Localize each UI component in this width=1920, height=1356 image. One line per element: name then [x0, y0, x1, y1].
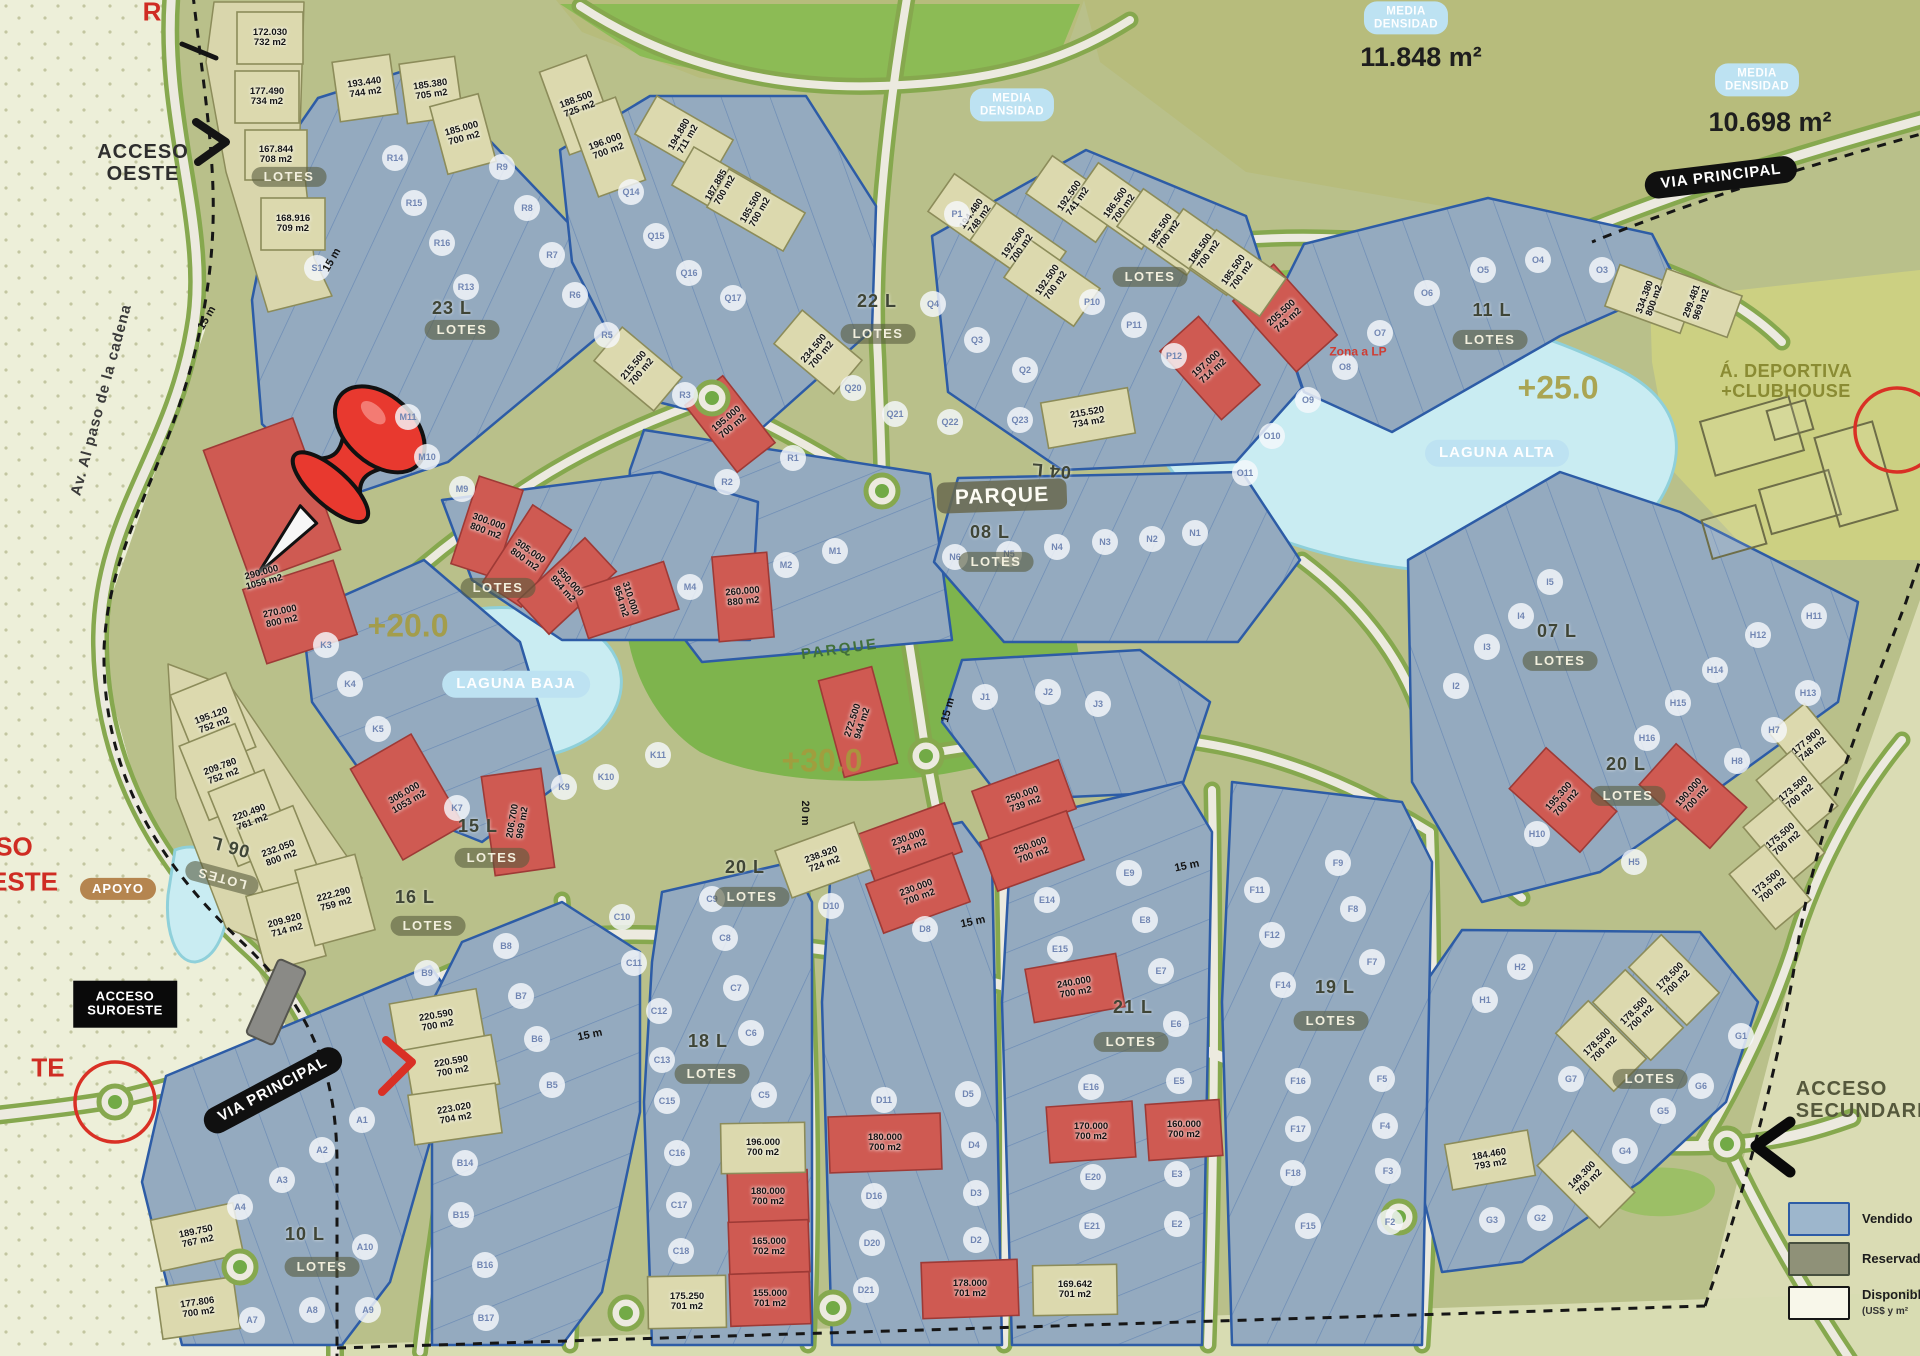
map-label-20-m: 20 m [799, 800, 811, 825]
lot-circle-p10: P10 [1079, 289, 1105, 315]
block-count-label: 22 L [857, 292, 897, 312]
lot-circle-f9: F9 [1325, 850, 1351, 876]
lot-circle-c6: C6 [738, 1020, 764, 1046]
lot-circle-o5: O5 [1470, 257, 1496, 283]
parcel-area-label: 177.900 748 m2 [1790, 727, 1829, 764]
lot-circle-g2: G2 [1527, 1205, 1553, 1231]
lot-circle-f4: F4 [1372, 1113, 1398, 1139]
lot-circle-f17: F17 [1285, 1116, 1311, 1142]
parcel-area-label: 232.050 800 m2 [260, 839, 299, 869]
legend-swatch-reservado [1788, 1242, 1850, 1276]
lotes-badge: LOTES [675, 1064, 750, 1084]
parcel-area-label: 234.500 700 m2 [799, 332, 836, 371]
lot-circle-k5: K5 [365, 716, 391, 742]
parcel-area-label: 310.000 954 m2 [610, 581, 640, 620]
lot-circle-j2: J2 [1035, 679, 1061, 705]
block-count-label: 08 L [970, 523, 1010, 543]
parcel-area-label: 175.500 700 m2 [1764, 821, 1803, 858]
lot-circle-c10: C10 [609, 904, 635, 930]
lot-circle-e7: E7 [1148, 958, 1174, 984]
block-count-label: 07 L [1537, 622, 1577, 642]
parcel-area-label: 178.000 701 m2 [953, 1279, 987, 1299]
lot-circle-e2: E2 [1164, 1211, 1190, 1237]
lotes-badge: LOTES [391, 916, 466, 936]
parcel-area-label: 165.000 702 m2 [752, 1237, 786, 1257]
lot-circle-c8: C8 [712, 925, 738, 951]
parcel-area-label: 192.500 700 m2 [1034, 263, 1070, 303]
lot-circle-b15: B15 [448, 1202, 474, 1228]
lot-circle-b7: B7 [508, 983, 534, 1009]
lot-circle-h16: H16 [1634, 725, 1660, 751]
lot-circle-f18: F18 [1280, 1160, 1306, 1186]
parcel-area-label: 185.000 700 m2 [444, 120, 482, 148]
legend-item-disponible: Disponible (US$ y m² [1788, 1286, 1920, 1320]
lot-circle-b16: B16 [472, 1252, 498, 1278]
parcel-area-label: 195.000 700 m2 [710, 404, 749, 441]
lot-circle-e8: E8 [1132, 907, 1158, 933]
parcel-area-label: 173.500 700 m2 [1750, 868, 1789, 905]
lot-circle-o7: O7 [1367, 320, 1393, 346]
lot-circle-r6: R6 [562, 282, 588, 308]
lotes-badge: LOTES [285, 1257, 360, 1277]
parcel-area-label: 196.000 700 m2 [587, 132, 626, 162]
parcel-area-label: 300.000 800 m2 [467, 512, 506, 542]
lot-circle-b6: B6 [524, 1026, 550, 1052]
lot-circle-h10: H10 [1524, 821, 1550, 847]
lotes-badge: LOTES [461, 578, 536, 598]
parcel-area-label: 196.000 700 m2 [746, 1138, 780, 1158]
block-count-label: 18 L [688, 1032, 728, 1052]
lot-circle-e15: E15 [1047, 936, 1073, 962]
lotes-badge: LOTES [1613, 1069, 1688, 1089]
lot-circle-h12: H12 [1745, 622, 1771, 648]
lot-circle-c15: C15 [654, 1088, 680, 1114]
map-label-15-m: 15 m [320, 246, 343, 274]
map-label-parque: PARQUE [800, 636, 880, 663]
lot-circle-i2: I2 [1443, 673, 1469, 699]
lot-circle-e6: E6 [1163, 1011, 1189, 1037]
lot-circle-q21: Q21 [882, 401, 908, 427]
parcel-area-label: 169.642 701 m2 [1058, 1280, 1092, 1300]
parcel-area-label: 149.300 700 m2 [1567, 1160, 1605, 1198]
parcel-area-label: 186.500 700 m2 [1102, 186, 1138, 226]
lotes-badge: LOTES [455, 848, 530, 868]
lot-circle-r3: R3 [672, 382, 698, 408]
map-label-15-m: 15 m [1173, 857, 1200, 874]
parcel-area-label: 175.250 701 m2 [670, 1292, 704, 1312]
parcel-area-label: 172.030 732 m2 [253, 28, 287, 48]
lot-circle-f5: F5 [1369, 1066, 1395, 1092]
parcel-area-label: 186.500 700 m2 [1187, 232, 1223, 272]
lot-circle-m11: M11 [395, 404, 421, 430]
block-count-label: 20 L [725, 858, 765, 878]
lotes-badge: LOTES [841, 324, 916, 344]
lot-circle-r8: R8 [514, 195, 540, 221]
parcel-area-label: 187.885 700 m2 [704, 168, 738, 208]
block-count-label: 23 L [432, 299, 472, 319]
block-count-label: 21 L [1113, 998, 1153, 1018]
lot-circle-f11: F11 [1244, 877, 1270, 903]
lotes-badge: LOTES [183, 859, 261, 898]
parcel-area-label: 215.500 700 m2 [619, 349, 656, 388]
parcel-area-label: 170.000 700 m2 [1074, 1122, 1108, 1142]
lotes-badge: LOTES [959, 552, 1034, 572]
lot-circle-o3: O3 [1589, 257, 1615, 283]
lot-circle-j1: J1 [972, 684, 998, 710]
lot-circle-n4: N4 [1044, 534, 1070, 560]
lot-circle-c11: C11 [621, 950, 647, 976]
lot-circle-k11: K11 [645, 742, 671, 768]
lot-circle-f8: F8 [1340, 896, 1366, 922]
parcel-area-label: 206.700 969 m2 [505, 803, 531, 840]
map-label-parque: PARQUE [936, 478, 1067, 514]
map-label-zona-a-lp: Zona a LP [1329, 345, 1386, 358]
map-label-laguna-alta: LAGUNA ALTA [1425, 440, 1569, 467]
lot-circle-a3: A3 [269, 1167, 295, 1193]
parcel-area-label: 173.500 700 m2 [1777, 774, 1816, 811]
lotes-badge: LOTES [1113, 267, 1188, 287]
map-label-15-m: 15 m [959, 913, 986, 930]
parcel-area-label: 306.000 1053 m2 [386, 780, 428, 816]
lot-circle-g5: G5 [1650, 1098, 1676, 1124]
lot-circle-q16: Q16 [676, 260, 702, 286]
parcel-area-label: 160.000 700 m2 [1167, 1120, 1201, 1140]
parcel-area-label: 178.500 700 m2 [1619, 996, 1657, 1034]
map-label-30-0: +30.0 [782, 743, 863, 778]
lot-circle-j3: J3 [1085, 691, 1111, 717]
lot-circle-n2: N2 [1139, 526, 1165, 552]
legend-item-reservado: Reservado [1788, 1242, 1920, 1276]
parcel-area-label: 197.000 714 m2 [1191, 349, 1230, 387]
parcel-area-label: 220.590 700 m2 [418, 1008, 455, 1034]
lot-circle-h8: H8 [1724, 748, 1750, 774]
parcel-area-label: 195.120 752 m2 [193, 706, 232, 736]
map-label-media-densidad: MEDIA DENSIDAD [970, 88, 1054, 121]
map-label-11-848-m: 11.848 m² [1360, 43, 1482, 73]
parcel-area-label: 230.000 700 m2 [898, 878, 937, 908]
lot-circle-e16: E16 [1078, 1074, 1104, 1100]
lot-circle-p1: P1 [944, 201, 970, 227]
lot-circle-g1: G1 [1728, 1023, 1754, 1049]
lot-circle-o4: O4 [1525, 247, 1551, 273]
lotes-badge: LOTES [1591, 786, 1666, 806]
lot-circle-a7: A7 [239, 1307, 265, 1333]
parcel-area-label: 272.500 944 m2 [843, 703, 873, 742]
block-count-label: 20 L [1606, 755, 1646, 775]
parcel-area-label: 209.780 752 m2 [202, 757, 241, 787]
lot-circle-c16: C16 [664, 1140, 690, 1166]
block-count-label: 06 L [208, 831, 252, 860]
map-label-te: TE [31, 1054, 64, 1083]
lot-circle-h5: H5 [1621, 849, 1647, 875]
parcel-area-label: 230.000 734 m2 [890, 828, 929, 858]
lot-circle-q2: Q2 [1012, 357, 1038, 383]
parcel-area-label: 177.806 700 m2 [180, 1296, 217, 1321]
parcel-area-label: 177.490 734 m2 [250, 87, 284, 107]
lotes-badge: LOTES [1523, 651, 1598, 671]
lot-circle-d3: D3 [963, 1180, 989, 1206]
lot-circle-a8: A8 [299, 1297, 325, 1323]
lot-circle-m9: M9 [449, 476, 475, 502]
lot-circle-k3: K3 [313, 632, 339, 658]
block-count-label: 11 L [1472, 301, 1511, 321]
lot-circle-q17: Q17 [720, 285, 746, 311]
map-label-15-m: 15 m [576, 1026, 603, 1043]
map-label-via-principal: VIA PRINCIPAL [199, 1042, 347, 1137]
lot-circle-k4: K4 [337, 671, 363, 697]
lot-circle-g6: G6 [1688, 1073, 1714, 1099]
lot-circle-a4: A4 [227, 1194, 253, 1220]
lot-circle-r15: R15 [401, 190, 427, 216]
lot-circle-h1: H1 [1472, 987, 1498, 1013]
parcel-area-label: 185.380 705 m2 [413, 78, 450, 103]
parcel-area-label: 290.000 1059 m2 [242, 564, 283, 593]
map-label-via-principal: VIA PRINCIPAL [1643, 155, 1798, 200]
lot-circle-h14: H14 [1702, 657, 1728, 683]
lot-circle-c17: C17 [666, 1192, 692, 1218]
parcel-area-label: 190.000 700 m2 [1674, 777, 1712, 816]
lot-circle-d16: D16 [861, 1183, 887, 1209]
parcel-area-label: 270.000 800 m2 [262, 604, 300, 631]
parcel-area-label: 155.000 701 m2 [753, 1289, 787, 1309]
lot-circle-m1: M1 [822, 538, 848, 564]
lot-circle-b5: B5 [539, 1072, 565, 1098]
lot-circle-a9: A9 [355, 1297, 381, 1323]
legend-label-disponible: Disponible (US$ y m² [1862, 1288, 1920, 1318]
legend-label-vendido: Vendido [1862, 1212, 1913, 1227]
lot-circle-r14: R14 [382, 145, 408, 171]
lot-circle-c13: C13 [649, 1047, 675, 1073]
legend-item-vendido: Vendido [1788, 1202, 1913, 1236]
lot-circle-n3: N3 [1092, 529, 1118, 555]
lot-circle-h15: H15 [1665, 690, 1691, 716]
lot-circle-m10: M10 [414, 444, 440, 470]
legend-swatch-disponible [1788, 1286, 1850, 1320]
map-label-deportiva-clubhouse: Á. DEPORTIVA +CLUBHOUSE [1720, 362, 1853, 402]
map-label-av-al-paso-de-la-cadena: Av. Al paso de la cadena [68, 302, 135, 497]
lot-circle-e14: E14 [1034, 887, 1060, 913]
parcel-area-label: 299.481 969 m2 [1682, 283, 1712, 322]
block-count-label: 15 L [458, 817, 498, 837]
lotes-badge: LOTES [425, 320, 500, 340]
lot-circle-c7: C7 [723, 975, 749, 1001]
map-label-laguna-baja: LAGUNA BAJA [442, 671, 590, 698]
parcel-area-label: 222.290 759 m2 [316, 886, 354, 914]
lot-circle-c5: C5 [751, 1082, 777, 1108]
parcel-area-label: 334.380 800 m2 [1635, 279, 1665, 318]
lot-circle-f2: F2 [1377, 1209, 1403, 1235]
lot-circle-o9: O9 [1295, 387, 1321, 413]
lot-circle-h11: H11 [1801, 603, 1827, 629]
lotes-badge: LOTES [1453, 330, 1528, 350]
map-label-10-698-m: 10.698 m² [1708, 108, 1831, 138]
parcel-area-label: 223.020 704 m2 [436, 1101, 473, 1127]
parcel-area-label: 178.500 700 m2 [1655, 961, 1693, 999]
lot-circle-o11: O11 [1232, 460, 1258, 486]
map-label-so: SO [0, 833, 33, 862]
lot-circle-p11: P11 [1121, 312, 1147, 338]
lot-circle-k9: K9 [551, 774, 577, 800]
lot-circle-b8: B8 [493, 933, 519, 959]
lot-circle-c18: C18 [668, 1238, 694, 1264]
block-count-label: 16 L [395, 888, 435, 908]
lot-circle-i4: I4 [1508, 603, 1534, 629]
map-label-15-m: 15 m [939, 696, 957, 723]
lot-circle-m4: M4 [677, 574, 703, 600]
lot-circle-q14: Q14 [618, 179, 644, 205]
lot-circle-d5: D5 [955, 1081, 981, 1107]
parcel-area-label: 180.000 700 m2 [751, 1187, 785, 1207]
lot-circle-b17: B17 [473, 1305, 499, 1331]
lot-circle-d10: D10 [818, 893, 844, 919]
lot-circle-r2: R2 [714, 469, 740, 495]
lot-circle-e20: E20 [1080, 1164, 1106, 1190]
lot-circle-q20: Q20 [840, 375, 866, 401]
parcel-area-label: 209.920 714 m2 [267, 912, 305, 940]
lot-circle-b14: B14 [452, 1150, 478, 1176]
lot-circle-f15: F15 [1295, 1213, 1321, 1239]
lot-circle-d11: D11 [871, 1087, 897, 1113]
lot-circle-e9: E9 [1116, 860, 1142, 886]
parcel-area-label: 195.300 700 m2 [1544, 781, 1582, 820]
map-label-20-0: +20.0 [368, 608, 449, 643]
parcel-area-label: 193.440 744 m2 [347, 76, 384, 101]
parcel-area-label: 188.500 725 m2 [558, 90, 597, 120]
parcel-area-label: 260.000 880 m2 [725, 586, 761, 609]
lot-circle-d8: D8 [912, 916, 938, 942]
parcel-area-label: 185.500 700 m2 [739, 190, 773, 230]
parcel-area-label: 238.920 724 m2 [803, 845, 842, 875]
lot-circle-a1: A1 [349, 1107, 375, 1133]
lot-circle-r9: R9 [489, 154, 515, 180]
lot-circle-g7: G7 [1558, 1066, 1584, 1092]
legend-label-reservado: Reservado [1862, 1252, 1920, 1267]
lotes-badge: LOTES [252, 167, 327, 187]
map-label-r: R [143, 0, 162, 26]
parcel-area-label: 350.000 954 m2 [547, 567, 585, 606]
map-labels: 172.030 732 m2177.490 734 m2167.844 708 … [0, 0, 1920, 1356]
lot-circle-k10: K10 [593, 764, 619, 790]
lot-circle-q4: Q4 [920, 291, 946, 317]
lotes-badge: LOTES [1294, 1011, 1369, 1031]
lot-circle-d2: D2 [963, 1227, 989, 1253]
parcel-area-label: 194.880 711 m2 [667, 117, 701, 157]
lot-circle-n1: N1 [1182, 520, 1208, 546]
lot-circle-c12: C12 [646, 998, 672, 1024]
lot-circle-h13: H13 [1795, 680, 1821, 706]
map-label-25-0: +25.0 [1518, 370, 1599, 405]
map-label-media-densidad: MEDIA DENSIDAD [1364, 1, 1448, 34]
lot-circle-d4: D4 [961, 1132, 987, 1158]
masterplan-map: 172.030 732 m2177.490 734 m2167.844 708 … [0, 0, 1920, 1356]
lot-circle-e3: E3 [1164, 1161, 1190, 1187]
parcel-area-label: 240.000 700 m2 [1056, 975, 1093, 1001]
parcel-area-label: 184.460 793 m2 [1471, 1147, 1508, 1173]
lot-circle-q15: Q15 [643, 223, 669, 249]
map-label-media-densidad: MEDIA DENSIDAD [1715, 63, 1799, 96]
legend-swatch-vendido [1788, 1202, 1850, 1236]
parcel-area-label: 215.520 734 m2 [1069, 405, 1106, 431]
lot-circle-m2: M2 [773, 552, 799, 578]
lot-circle-f12: F12 [1259, 922, 1285, 948]
lot-circle-r5: R5 [594, 322, 620, 348]
parcel-area-label: 167.844 708 m2 [259, 145, 293, 165]
parcel-area-label: 305.000 800 m2 [507, 538, 547, 574]
parcel-area-label: 185.500 700 m2 [1147, 212, 1183, 252]
lot-circle-i3: I3 [1474, 634, 1500, 660]
parcel-area-label: 205.500 743 m2 [1266, 298, 1305, 336]
block-count-label: 19 L [1315, 978, 1355, 998]
lot-circle-d21: D21 [853, 1277, 879, 1303]
lot-circle-q22: Q22 [937, 409, 963, 435]
lot-circle-q3: Q3 [964, 327, 990, 353]
lot-circle-e21: E21 [1079, 1213, 1105, 1239]
lot-circle-a2: A2 [309, 1137, 335, 1163]
map-label-apoyo: APOYO [80, 878, 156, 900]
lot-circle-b9: B9 [414, 960, 440, 986]
parcel-area-label: 220.490 761 m2 [231, 803, 270, 833]
lot-circle-h2: H2 [1507, 954, 1533, 980]
parcel-area-label: 220.590 700 m2 [433, 1054, 470, 1080]
parcel-area-label: 185.500 700 m2 [1220, 253, 1256, 293]
map-label-15-m: 15 m [195, 304, 218, 332]
map-label-acceso-suroeste: ACCESO SUROESTE [73, 981, 177, 1028]
parcel-area-label: 168.916 709 m2 [276, 214, 310, 234]
lot-circle-h7: H7 [1761, 717, 1787, 743]
lot-circle-f3: F3 [1375, 1158, 1401, 1184]
parcel-area-label: 178.500 700 m2 [1582, 1027, 1620, 1065]
lot-circle-i5: I5 [1537, 569, 1563, 595]
parcel-area-label: 192.500 741 m2 [1056, 179, 1092, 219]
lot-circle-r16: R16 [429, 230, 455, 256]
block-count-label: 10 L [285, 1225, 325, 1245]
lotes-badge: LOTES [1094, 1032, 1169, 1052]
lot-circle-o10: O10 [1259, 423, 1285, 449]
lot-circle-d20: D20 [859, 1230, 885, 1256]
lot-circle-p12: P12 [1161, 343, 1187, 369]
lot-circle-o6: O6 [1414, 280, 1440, 306]
lot-circle-r7: R7 [539, 242, 565, 268]
lot-circle-a10: A10 [352, 1234, 378, 1260]
parcel-area-label: 189.750 767 m2 [178, 1224, 216, 1251]
lot-circle-q23: Q23 [1007, 407, 1033, 433]
map-label-acceso-secundario: ACCESO SECUNDARIO [1796, 1078, 1920, 1122]
lot-circle-g3: G3 [1479, 1207, 1505, 1233]
lot-circle-r13: R13 [453, 274, 479, 300]
map-label-acceso-oeste: ACCESO OESTE [97, 141, 189, 185]
lot-circle-g4: G4 [1612, 1138, 1638, 1164]
lotes-badge: LOTES [715, 887, 790, 907]
lot-circle-f16: F16 [1285, 1068, 1311, 1094]
lot-circle-e5: E5 [1166, 1068, 1192, 1094]
parcel-area-label: 250.000 700 m2 [1012, 836, 1051, 866]
lot-circle-f14: F14 [1270, 972, 1296, 998]
lot-circle-r1: R1 [780, 445, 806, 471]
parcel-area-label: 192.500 700 m2 [1000, 226, 1036, 266]
map-label-este: ESTE [0, 868, 58, 897]
parcel-area-label: 250.000 739 m2 [1004, 785, 1043, 815]
parcel-area-label: 180.000 700 m2 [868, 1133, 902, 1153]
lot-circle-f7: F7 [1359, 949, 1385, 975]
